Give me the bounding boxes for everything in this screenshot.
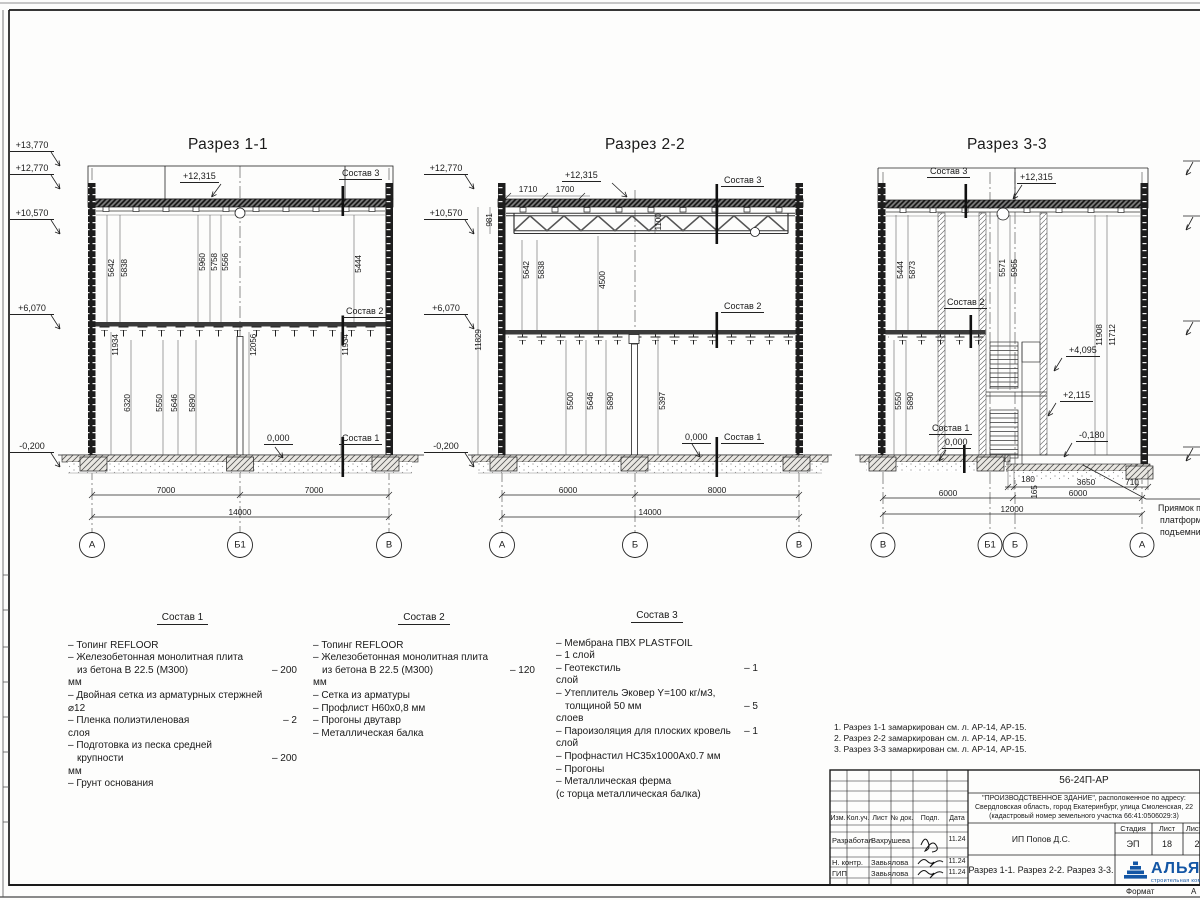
axis-label: Б	[632, 540, 638, 551]
composition-ref-label: Состав 1	[721, 432, 764, 444]
elevation-mark: +12,315	[1017, 172, 1056, 184]
dim-label: 5960	[197, 253, 207, 271]
dim-label: 165	[1029, 485, 1039, 498]
composition-line: мм	[313, 677, 535, 690]
client-name: ИП Попов Д.С.	[1012, 834, 1070, 844]
composition-line: – Мембрана ПВХ PLASTFOIL	[556, 638, 758, 651]
dim-label: 12056	[248, 334, 258, 356]
drawing-title: Разрез 1-1. Разрез 2-2. Разрез 3-3.	[968, 865, 1113, 875]
dim-label: 5758	[209, 253, 219, 271]
person-name: Завьялова	[871, 858, 908, 867]
elevation-mark: +12,770	[424, 163, 468, 175]
elevation-mark: +6,070	[10, 303, 54, 315]
composition-line: – Прогоны двутавр	[313, 715, 535, 728]
note-line: 1. Разрез 1-1 замаркирован см. л. АР-14,…	[834, 722, 1027, 732]
composition-line: – Металлическая балка	[313, 728, 535, 741]
composition-line: – Пароизоляция для плоских кровель– 1	[556, 726, 758, 739]
dim-label: 5550	[893, 392, 903, 410]
date-value: 11.24	[949, 836, 966, 843]
dim-label: 981	[484, 213, 494, 226]
dim-label: 5444	[353, 255, 363, 273]
project-description: (кадастровый номер земельного участка 66…	[989, 813, 1179, 820]
pit-annotation: подъемни	[1160, 527, 1200, 538]
dim-label: 6000	[1069, 488, 1087, 498]
composition-line: – Железобетонная монолитная плита	[313, 652, 535, 665]
composition-line: ⌀12	[68, 703, 297, 716]
composition-line: слой	[556, 738, 758, 751]
dim-label: 5642	[521, 261, 531, 279]
axis-label: В	[880, 540, 886, 551]
logo-triangle-icon	[1124, 862, 1147, 879]
note-line: 2. Разрез 2-2 замаркирован см. л. АР-14,…	[834, 733, 1027, 743]
elevation-mark: +12,315	[562, 170, 601, 182]
dim-label: 11829	[473, 329, 483, 350]
stage-header: Стадия	[1120, 824, 1146, 833]
composition-title: Состав 2	[313, 612, 535, 625]
composition-line: мм	[68, 677, 297, 690]
elevation-mark: +10,570	[10, 208, 54, 220]
dim-label: 5550	[154, 394, 164, 412]
axis-label: А	[499, 540, 505, 551]
elevation-mark: +2,115	[1060, 390, 1093, 402]
column-header: Кол.уч.	[847, 815, 870, 822]
dim-label: 5500	[565, 392, 575, 410]
dim-label: 6320	[122, 394, 132, 412]
date-value: 11.24	[949, 869, 966, 876]
date-value: 11.24	[949, 858, 966, 865]
composition-line: из бетона В 22.5 (М300)– 120	[313, 665, 535, 678]
composition-line: – 1 слой	[556, 650, 758, 663]
composition-ref-label: Состав 3	[927, 166, 970, 178]
composition-line: (с торца металлическая балка)	[556, 789, 758, 802]
composition-line: слоя	[68, 728, 297, 741]
elevation-mark: -0,200	[10, 441, 54, 453]
stage-value: ЭП	[1127, 839, 1140, 849]
section-title: Разрез 3-3	[967, 136, 1047, 154]
composition-line: крупности– 200	[68, 753, 297, 766]
composition-line: – Пленка полиэтиленовая– 2	[68, 715, 297, 728]
composition-line: – Железобетонная монолитная плита	[68, 652, 297, 665]
dim-label: 1100	[653, 213, 663, 230]
axis-label: Б1	[984, 540, 996, 551]
column-header: Изм.	[831, 815, 846, 822]
project-description: "ПРОИЗВОДСТВЕННОЕ ЗДАНИЕ", расположенное…	[982, 795, 1186, 802]
pit-annotation: платформ	[1160, 515, 1200, 526]
axis-label: В	[796, 540, 802, 551]
composition-line: – Утеплитель Эковер Y=100 кг/м3,	[556, 688, 758, 701]
dim-label: 180	[1021, 474, 1035, 484]
elevation-mark: -0,180	[1076, 430, 1108, 442]
dim-label: 5890	[905, 392, 915, 410]
composition-title: Состав 3	[556, 610, 758, 623]
elevation-mark: +4,095	[1066, 345, 1100, 357]
dim-label: 11934	[340, 334, 350, 355]
composition-ref-label: Состав 3	[339, 168, 382, 180]
section-3-3-drawing	[855, 161, 1200, 557]
dim-label: 5646	[585, 392, 595, 410]
sheet-header: Лист	[1159, 824, 1175, 833]
dim-label: 5646	[169, 394, 179, 412]
elevation-mark: +10,570	[424, 208, 468, 220]
axis-label: А	[89, 540, 95, 551]
dim-label: 7000	[157, 485, 175, 495]
dim-label: 14000	[638, 507, 661, 517]
dim-label: 6000	[939, 488, 957, 498]
company-logo-text: АЛЬЯНС	[1151, 860, 1200, 878]
dim-label: 5838	[536, 261, 546, 279]
dim-label: 14000	[228, 507, 251, 517]
dim-label: 5890	[605, 392, 615, 410]
format-value: А	[1191, 887, 1196, 896]
sheets-value: 2	[1194, 839, 1199, 849]
section-title: Разрез 2-2	[605, 136, 685, 154]
person-name: Вахрушева	[871, 836, 910, 845]
composition-line: – Геотекстиль– 1	[556, 663, 758, 676]
composition-line: мм	[68, 766, 297, 779]
dim-label: 5444	[895, 261, 905, 279]
composition-line: – Топинг REFLOOR	[313, 640, 535, 653]
dim-label: 5890	[187, 394, 197, 412]
column-header: № док.	[891, 815, 913, 822]
pit-annotation: Приямок п	[1158, 503, 1200, 514]
role-label: ГИП	[832, 869, 847, 878]
dim-label: 4500	[597, 271, 607, 289]
composition-line: – Сетка из арматуры	[313, 690, 535, 703]
composition-ref-label: Состав 2	[944, 297, 987, 309]
composition-2-block: Состав 2 – Топинг REFLOOR – Железобетонн…	[313, 612, 535, 740]
composition-line: – Металлическая ферма	[556, 776, 758, 789]
role-label: Н. контр.	[832, 858, 863, 867]
elevation-mark: +12,315	[180, 171, 219, 183]
column-header: Подп.	[921, 815, 940, 822]
doc-number: 56-24П-АР	[1059, 775, 1108, 786]
sheet-value: 18	[1162, 839, 1172, 849]
composition-line: – Прогоны	[556, 764, 758, 777]
dim-label: 710	[1125, 477, 1139, 487]
dim-label: 11908	[1094, 324, 1104, 345]
axis-label: Б	[1012, 540, 1018, 551]
composition-ref-label: Состав 2	[721, 301, 764, 313]
dim-label: 3650	[1077, 477, 1095, 487]
dim-label: 1700	[556, 184, 574, 194]
composition-ref-label: Состав 1	[339, 433, 382, 445]
composition-line: – Двойная сетка из арматурных стержней	[68, 690, 297, 703]
section-title: Разрез 1-1	[188, 136, 268, 154]
column-header: Лист	[872, 815, 887, 822]
elevation-mark: +6,070	[424, 303, 468, 315]
dim-label: 5566	[220, 253, 230, 271]
sheets-header: Листов	[1186, 824, 1200, 833]
project-description: Свердловская область, город Екатеринбург…	[975, 804, 1193, 811]
role-label: Разработал	[832, 836, 873, 845]
note-line: 3. Разрез 3-3 замаркирован см. л. АР-14,…	[834, 744, 1027, 754]
format-label: Формат	[1126, 887, 1154, 896]
drawing-sheet: { "s1": { "title": "Разрез 1-1", "elevs"…	[0, 0, 1200, 900]
composition-title: Состав 1	[68, 612, 297, 625]
composition-line: слоев	[556, 713, 758, 726]
dim-label: 5965	[1009, 259, 1019, 277]
axis-label: В	[386, 540, 392, 551]
composition-ref-label: Состав 1	[929, 423, 972, 435]
dim-label: 5397	[657, 392, 667, 410]
composition-line: – Подготовка из песка средней	[68, 740, 297, 753]
composition-ref-label: Состав 2	[343, 306, 386, 318]
elevation-mark: 0,000	[942, 437, 971, 449]
composition-line: – Топинг REFLOOR	[68, 640, 297, 653]
composition-3-block: Состав 3 – Мембрана ПВХ PLASTFOIL – 1 сл…	[556, 610, 758, 801]
dim-label: 5642	[106, 259, 116, 277]
dim-label: 12000	[1000, 504, 1023, 514]
dim-label: 5571	[997, 259, 1007, 277]
composition-line: толщиной 50 мм– 5	[556, 701, 758, 714]
section-1-1-drawing	[51, 152, 424, 558]
dim-label: 5873	[907, 261, 917, 279]
dim-label: 1710	[519, 184, 537, 194]
company-logo-subtext: строительная компания	[1151, 878, 1200, 884]
dim-label: 5838	[119, 259, 129, 277]
axis-label: Б1	[234, 540, 246, 551]
dim-label: 6000	[559, 485, 577, 495]
elevation-mark: 0,000	[682, 432, 711, 444]
composition-line: – Профлист Н60х0,8 мм	[313, 703, 535, 716]
dim-label: 11712	[1107, 324, 1117, 345]
composition-1-block: Состав 1 – Топинг REFLOOR – Железобетонн…	[68, 612, 297, 791]
axis-label: А	[1139, 540, 1145, 551]
elevation-mark: 0,000	[264, 433, 293, 445]
composition-line: из бетона В 22.5 (М300)– 200	[68, 665, 297, 678]
elevation-mark: -0,200	[424, 441, 468, 453]
composition-line: – Грунт основания	[68, 778, 297, 791]
dim-label: 8000	[708, 485, 726, 495]
person-name: Завьялова	[871, 869, 908, 878]
signature-icon	[918, 839, 943, 878]
section-2-2-drawing	[465, 175, 832, 558]
elevation-mark: +13,770	[10, 140, 54, 152]
composition-ref-label: Состав 3	[721, 175, 764, 187]
composition-line: – Профнастил НС35х1000Ах0.7 мм	[556, 751, 758, 764]
composition-line: слой	[556, 675, 758, 688]
dim-label: 7000	[305, 485, 323, 495]
column-header: Дата	[949, 815, 965, 822]
elevation-mark: +12,770	[10, 163, 54, 175]
dim-label: 11934	[110, 334, 120, 355]
